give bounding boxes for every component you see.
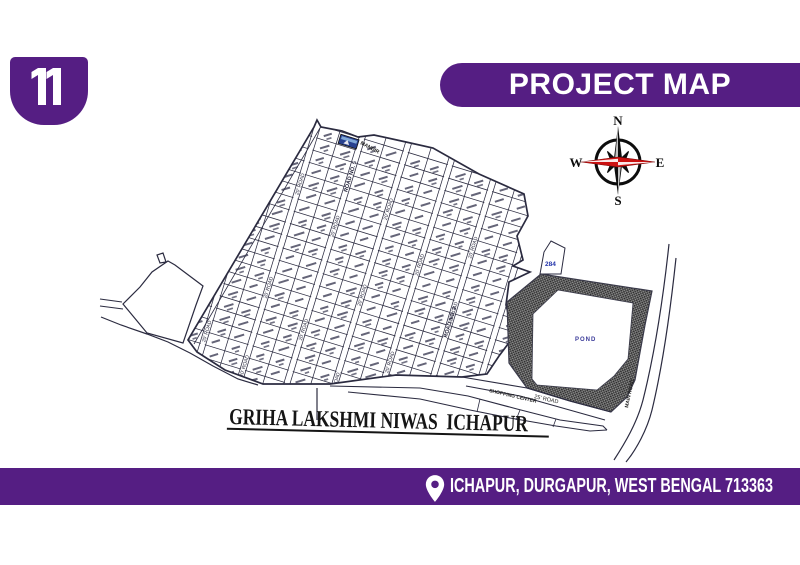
svg-text:POND: POND bbox=[575, 337, 596, 343]
svg-text:N: N bbox=[613, 113, 623, 128]
svg-text:SHOPPING CENTER: SHOPPING CENTER bbox=[489, 388, 538, 405]
svg-text:ROAD NO. 4: ROAD NO. 4 bbox=[249, 152, 264, 185]
svg-text:E: E bbox=[656, 155, 665, 170]
svg-text:284: 284 bbox=[545, 261, 556, 268]
svg-text:W: W bbox=[570, 155, 583, 170]
svg-text:S: S bbox=[614, 193, 621, 208]
